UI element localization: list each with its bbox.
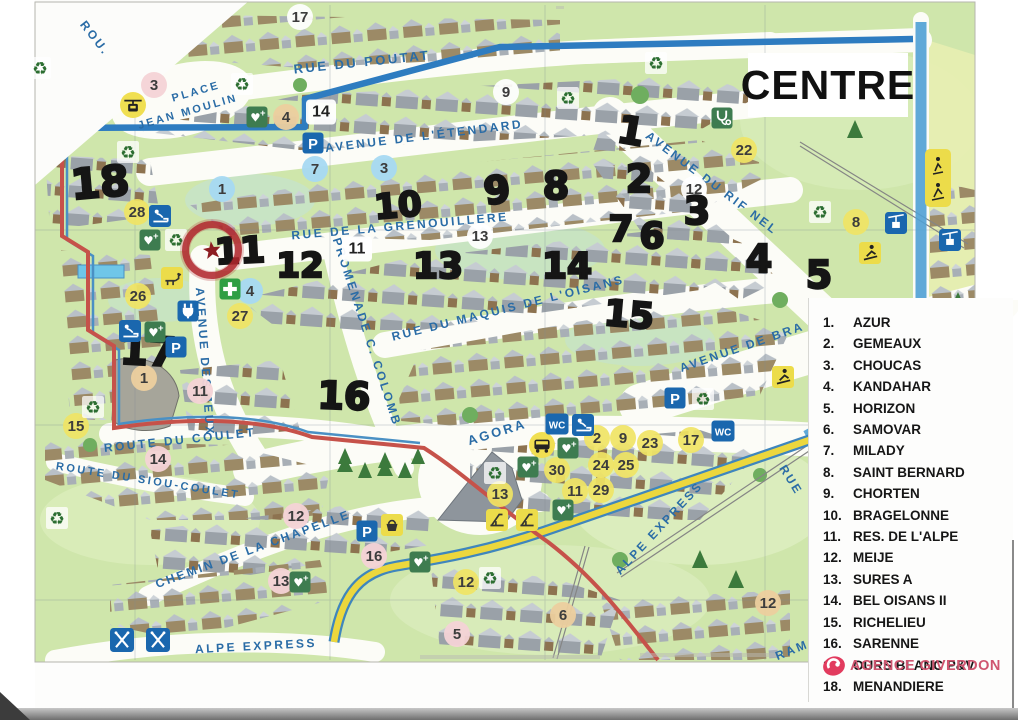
svg-text:WC: WC xyxy=(549,421,566,432)
defib-icon: ♥+ xyxy=(145,322,166,343)
svg-text:♻: ♻ xyxy=(648,55,664,74)
legend-item-chorten: 9.CHORTEN xyxy=(823,483,1013,504)
svg-text:♻: ♻ xyxy=(120,144,136,163)
handwritten-marker-6: 6 xyxy=(639,219,664,255)
svg-text:♻: ♻ xyxy=(487,465,503,484)
legend-list: 1.AZUR2.GEMEAUX3.CHOUCAS4.KANDAHAR5.HORI… xyxy=(823,312,1013,697)
svg-text:♻: ♻ xyxy=(234,76,250,95)
legend-item-label: BEL OISANS II xyxy=(853,590,1013,611)
location-badge-7: 7 xyxy=(302,156,328,182)
play-icon xyxy=(486,509,508,531)
legend-item-label: GEMEAUX xyxy=(853,333,1013,354)
location-badge-1: 1 xyxy=(209,176,235,202)
legend-item-number: 10. xyxy=(823,505,853,526)
location-badge-27: 27 xyxy=(227,303,253,329)
wc-icon: WC xyxy=(712,421,735,442)
legend-item-number: 4. xyxy=(823,376,853,397)
legend-item-number: 11. xyxy=(823,526,853,547)
legend-panel: 1.AZUR2.GEMEAUX3.CHOUCAS4.KANDAHAR5.HORI… xyxy=(808,298,1013,702)
cross-icon xyxy=(220,279,241,300)
parking-icon: P xyxy=(665,388,686,409)
handwritten-marker-13: 13 xyxy=(413,249,463,285)
legend-item-label: BRAGELONNE xyxy=(853,505,1013,526)
legend-item-gemeaux: 2.GEMEAUX xyxy=(823,333,1013,354)
handwritten-marker-7: 7 xyxy=(608,212,633,248)
location-badge-24: 24 xyxy=(588,452,614,478)
handwritten-marker-8: 8 xyxy=(543,167,569,205)
svg-text:P: P xyxy=(362,525,372,541)
legend-item-number: 2. xyxy=(823,333,853,354)
svg-text:♻: ♻ xyxy=(32,60,48,79)
legend-item-label: MENANDIERE xyxy=(853,676,1013,697)
recycle-icon: ♻ xyxy=(46,507,68,529)
location-badge-25: 25 xyxy=(613,452,639,478)
location-badge-29: 29 xyxy=(588,477,614,503)
svg-text:♻: ♻ xyxy=(49,510,65,529)
legend-item-label: RES. DE L'ALPE xyxy=(853,526,1013,547)
chairlift-icon xyxy=(885,212,907,234)
scan-edge xyxy=(1012,540,1014,710)
svg-text:+: + xyxy=(531,458,537,469)
svg-text:♻: ♻ xyxy=(482,570,498,589)
location-badge-17: 17 xyxy=(287,4,313,30)
baby-icon xyxy=(119,320,141,342)
recycle-icon: ♻ xyxy=(809,201,831,223)
location-badge-30: 30 xyxy=(544,457,570,483)
location-badge-11: 11 xyxy=(342,237,372,262)
location-badge-14: 14 xyxy=(306,100,336,125)
legend-item-menandiere: 18.MENANDIERE xyxy=(823,676,1013,697)
handwritten-marker-16: 16 xyxy=(317,376,371,416)
location-badge-13: 13 xyxy=(487,481,513,507)
legend-item-res-de-l-alpe: 11.RES. DE L'ALPE xyxy=(823,526,1013,547)
page-title: CENTRE xyxy=(741,62,916,109)
location-badge-13: 13 xyxy=(467,223,493,249)
legend-item-bel-oisans-ii: 14.BEL OISANS II xyxy=(823,590,1013,611)
scan-corner-shadow xyxy=(0,692,30,720)
legend-item-label: KANDAHAR xyxy=(853,376,1013,397)
svg-text:P: P xyxy=(171,341,181,357)
recycle-icon: ♻ xyxy=(484,462,506,484)
map-title-box: CENTRE xyxy=(748,53,908,117)
legend-item-label: RICHELIEU xyxy=(853,612,1013,633)
svg-text:P: P xyxy=(308,137,318,153)
skier-icon xyxy=(772,366,794,388)
recycle-icon: ♻ xyxy=(82,396,104,418)
legend-item-label: MEIJE xyxy=(853,547,1013,568)
legend-item-milady: 7.MILADY xyxy=(823,440,1013,461)
recycle-icon: ♻ xyxy=(117,141,139,163)
recycle-icon: ♻ xyxy=(479,567,501,589)
defib-icon: ♥+ xyxy=(518,457,539,478)
legend-item-meije: 12.MEIJE xyxy=(823,547,1013,568)
location-badge-5: 5 xyxy=(444,621,470,647)
legend-item-number: 5. xyxy=(823,398,853,419)
parking-icon: P xyxy=(357,521,378,542)
handwritten-marker-14: 14 xyxy=(542,249,592,285)
agency-branding: AGENCE GIVERDON xyxy=(822,655,1001,677)
location-badge-9: 9 xyxy=(610,425,636,451)
legend-item-label: CHORTEN xyxy=(853,483,1013,504)
legend-item-label: SURES A xyxy=(853,569,1013,590)
steth-icon xyxy=(712,108,733,129)
legend-item-number: 16. xyxy=(823,633,853,654)
legend-item-saint-bernard: 8.SAINT BERNARD xyxy=(823,462,1013,483)
gondola-circle-icon xyxy=(120,92,146,118)
legend-item-kandahar: 4.KANDAHAR xyxy=(823,376,1013,397)
location-badge-22: 22 xyxy=(731,137,757,163)
legend-item-number: 1. xyxy=(823,312,853,333)
svg-text:+: + xyxy=(158,323,164,334)
location-badge-16: 16 xyxy=(361,543,387,569)
recycle-icon: ♻ xyxy=(557,87,579,109)
handwritten-marker-2: 2 xyxy=(626,160,652,198)
scanned-resort-map: ROU.RUE DU POUTATPLACEJEAN MOULINAVENUE … xyxy=(0,0,1018,720)
legend-item-sarenne: 16.SARENNE xyxy=(823,633,1013,654)
legend-item-label: SAINT BERNARD xyxy=(853,462,1013,483)
defib-icon: ♥+ xyxy=(290,572,311,593)
baby-icon xyxy=(149,205,171,227)
handwritten-marker-12: 12 xyxy=(276,249,323,283)
legend-item-label: SAMOVAR xyxy=(853,419,1013,440)
handwritten-marker-15: 15 xyxy=(602,296,655,336)
recycle-icon: ♻ xyxy=(645,52,667,74)
location-badge-12: 12 xyxy=(755,590,781,616)
chairlift-icon xyxy=(939,229,961,251)
legend-item-number: 14. xyxy=(823,590,853,611)
bus-circle-icon xyxy=(529,432,555,458)
handwritten-marker-5: 5 xyxy=(806,256,832,294)
defib-icon: ♥+ xyxy=(247,107,268,128)
legend-item-label: MILADY xyxy=(853,440,1013,461)
handwritten-marker-4: 4 xyxy=(746,240,772,278)
handwritten-marker-10: 10 xyxy=(373,187,423,225)
scan-bottom-shadow xyxy=(0,708,1018,720)
legend-item-number: 3. xyxy=(823,355,853,376)
legend-item-bragelonne: 10.BRAGELONNE xyxy=(823,505,1013,526)
plug-icon xyxy=(178,301,199,322)
legend-item-label: AZUR xyxy=(853,312,1013,333)
location-badge-11: 11 xyxy=(187,378,213,404)
agency-name: AGENCE GIVERDON xyxy=(850,658,1001,674)
basket-icon xyxy=(381,514,403,536)
legend-item-samovar: 6.SAMOVAR xyxy=(823,419,1013,440)
legend-item-number: 15. xyxy=(823,612,853,633)
location-badge-4: 4 xyxy=(273,104,299,130)
svg-text:P: P xyxy=(670,392,680,408)
legend-item-number: 18. xyxy=(823,676,853,697)
location-badge-3: 3 xyxy=(371,155,397,181)
legend-item-label: CHOUCAS xyxy=(853,355,1013,376)
parking-icon: P xyxy=(303,133,324,154)
legend-item-number: 6. xyxy=(823,419,853,440)
legend-item-label: SARENNE xyxy=(853,633,1013,654)
legend-item-number: 13. xyxy=(823,569,853,590)
skicross-icon xyxy=(146,628,170,652)
svg-text:+: + xyxy=(260,108,266,119)
svg-text:♻: ♻ xyxy=(812,204,828,223)
baby-icon xyxy=(572,414,594,436)
legend-item-number: 9. xyxy=(823,483,853,504)
handwritten-marker-18: 18 xyxy=(69,160,131,207)
svg-text:♻: ♻ xyxy=(560,90,576,109)
location-badge-23: 23 xyxy=(637,430,663,456)
svg-text:+: + xyxy=(566,501,572,512)
skicross-icon xyxy=(110,628,134,652)
play-icon xyxy=(516,509,538,531)
location-badge-12: 12 xyxy=(453,569,479,595)
legend-item-sures-a: 13.SURES A xyxy=(823,569,1013,590)
location-badge-17: 17 xyxy=(678,427,704,453)
location-badge-26: 26 xyxy=(125,283,151,309)
defib-icon: ♥+ xyxy=(410,552,431,573)
dog-icon xyxy=(161,267,183,289)
legend-item-number: 7. xyxy=(823,440,853,461)
recycle-icon: ♻ xyxy=(29,57,51,79)
location-badge-4: 4 xyxy=(237,278,263,304)
wc-icon: WC xyxy=(546,414,569,435)
legend-item-label: HORIZON xyxy=(853,398,1013,419)
svg-text:WC: WC xyxy=(715,428,732,439)
infopanel-icon xyxy=(925,149,951,207)
legend-item-azur: 1.AZUR xyxy=(823,312,1013,333)
legend-item-choucas: 3.CHOUCAS xyxy=(823,355,1013,376)
skier-icon xyxy=(859,242,881,264)
defib-icon: ♥+ xyxy=(553,500,574,521)
svg-text:+: + xyxy=(423,553,429,564)
swimming-pool xyxy=(78,265,124,278)
svg-text:♻: ♻ xyxy=(85,399,101,418)
recycle-icon: ♻ xyxy=(231,73,253,95)
location-badge-14: 14 xyxy=(145,446,171,472)
svg-text:♻: ♻ xyxy=(695,391,711,410)
legend-item-horizon: 5.HORIZON xyxy=(823,398,1013,419)
location-badge-12: 12 xyxy=(283,503,309,529)
legend-item-richelieu: 15.RICHELIEU xyxy=(823,612,1013,633)
svg-text:+: + xyxy=(303,573,309,584)
defib-icon: ♥+ xyxy=(140,230,161,251)
svg-text:+: + xyxy=(153,231,159,242)
legend-item-number: 12. xyxy=(823,547,853,568)
recycle-icon: ♻ xyxy=(692,388,714,410)
parking-icon: P xyxy=(166,337,187,358)
svg-text:+: + xyxy=(571,439,577,450)
handwritten-marker-9: 9 xyxy=(481,169,512,210)
legend-item-number: 8. xyxy=(823,462,853,483)
location-badge-8: 8 xyxy=(843,209,869,235)
defib-icon: ♥+ xyxy=(558,438,579,459)
location-badge-6: 6 xyxy=(550,602,576,628)
location-badge-9: 9 xyxy=(493,79,519,105)
red-star-icon xyxy=(200,238,225,263)
agency-logo-icon xyxy=(822,655,846,677)
handwritten-marker-3: 3 xyxy=(684,192,710,230)
